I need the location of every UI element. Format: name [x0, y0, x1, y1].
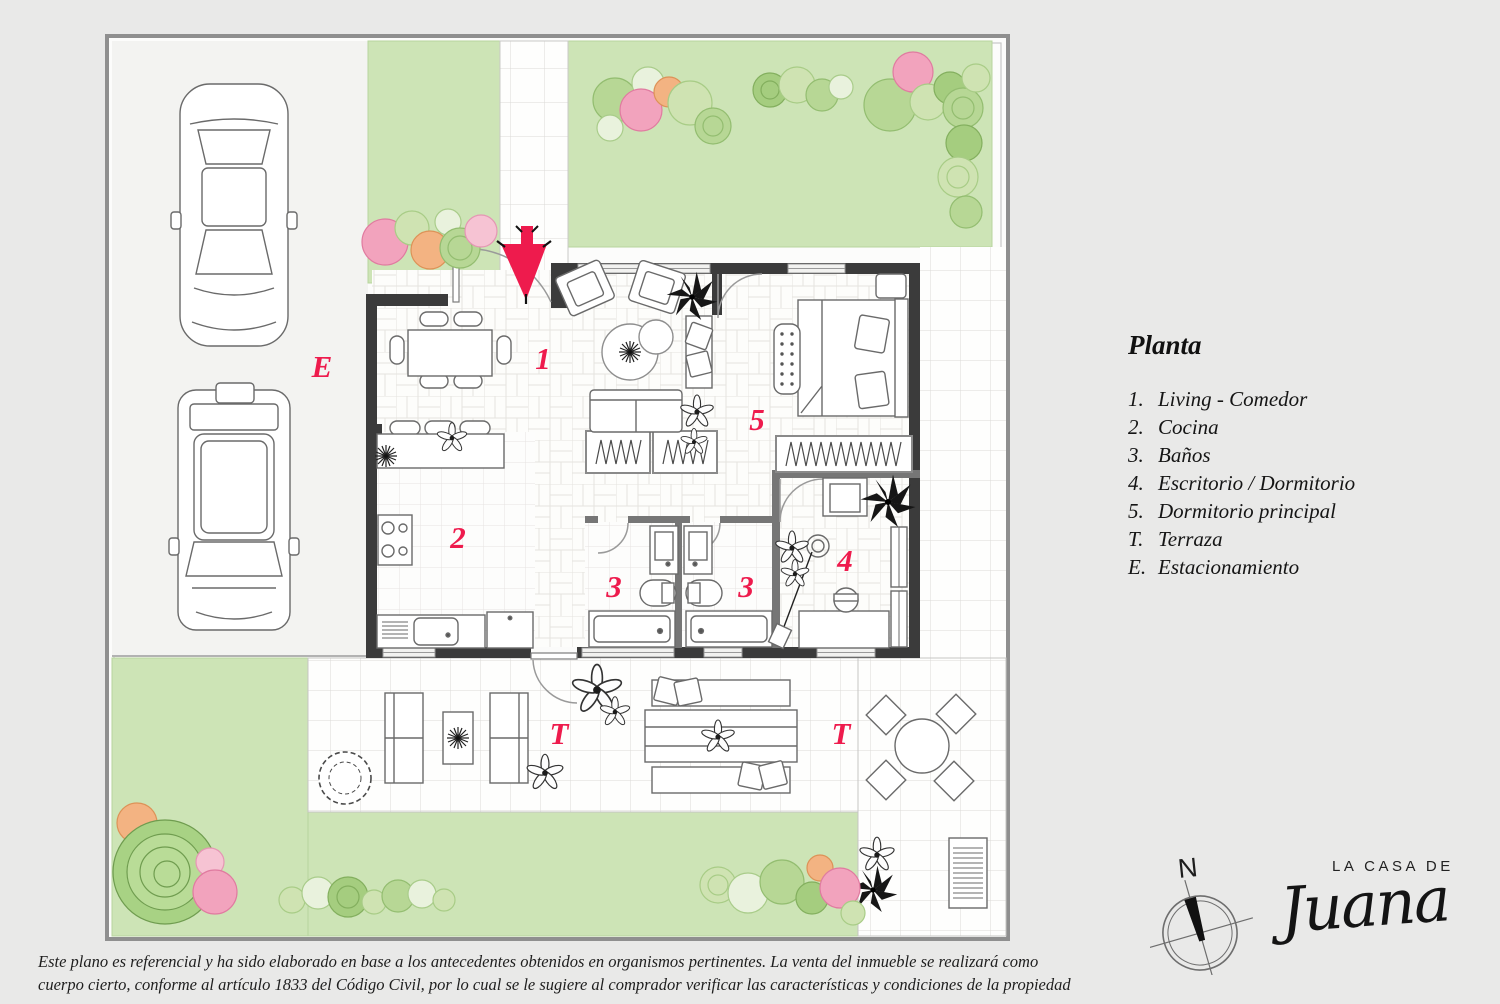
legend-item-living: 1.Living - Comedor: [1128, 385, 1355, 413]
legend-item-banos: 3.Baños: [1128, 441, 1355, 469]
car-suv: [169, 383, 299, 630]
brand-logo-script-text: Juana: [1278, 860, 1483, 947]
disclaimer-line-1: Este plano es referencial y ha sido elab…: [38, 950, 1083, 973]
kitchen-bar: [377, 421, 504, 468]
room-label-escritorio: 4: [837, 543, 853, 579]
legend-item-escritorio: 4.Escritorio / Dormitorio: [1128, 469, 1355, 497]
terrace-shrub: [319, 752, 371, 804]
room-label-estacionamiento: E: [312, 349, 333, 385]
car-sedan: [171, 84, 297, 346]
legend-item-estacionamiento: E.Estacionamiento: [1128, 553, 1355, 581]
compass-north-label: N: [1176, 852, 1199, 885]
floor-plan-page: 1 2 3 3 4 5 T T E Planta 1.Living - Come…: [0, 0, 1500, 1004]
legend-title: Planta: [1128, 330, 1355, 361]
room-label-dormitorio-principal: 5: [749, 402, 765, 438]
room-label-living: 1: [535, 341, 551, 377]
room-label-terraza-right: T: [832, 716, 851, 752]
room-label-bano-left: 3: [606, 569, 622, 605]
compass: N: [1150, 845, 1270, 975]
room-label-bano-right: 3: [738, 569, 754, 605]
room-label-terraza-left: T: [550, 716, 569, 752]
compass-rose-icon: [1150, 845, 1270, 975]
legend-item-dormitorio: 5.Dormitorio principal: [1128, 497, 1355, 525]
room-label-cocina: 2: [450, 520, 466, 556]
disclaimer: Este plano es referencial y ha sido elab…: [38, 950, 1083, 996]
legend: Planta 1.Living - Comedor 2.Cocina 3.Bañ…: [1128, 330, 1355, 581]
legend-item-terraza: T.Terraza: [1128, 525, 1355, 553]
brand-logo: LA CASA DE Juana: [1280, 858, 1480, 940]
legend-item-cocina: 2.Cocina: [1128, 413, 1355, 441]
side-walkway: [920, 247, 1006, 658]
disclaimer-line-2: cuerpo cierto, conforme al artículo 1833…: [38, 973, 1083, 996]
